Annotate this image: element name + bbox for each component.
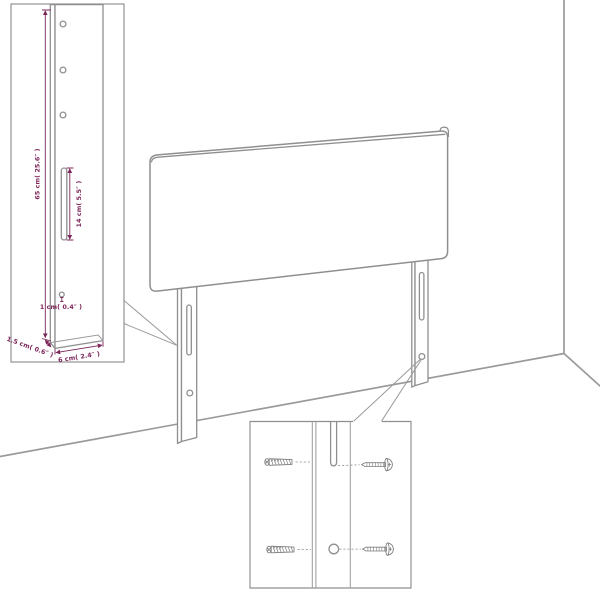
floor-line-right — [564, 354, 600, 387]
dimension-leg-height: 65 cm( 25.6″ ) — [35, 10, 52, 341]
left-leg-front-face — [182, 280, 197, 442]
inset-small-hole — [59, 292, 64, 297]
inset-hole — [329, 544, 339, 554]
headboard-panel — [150, 127, 448, 291]
callout-line — [124, 301, 177, 346]
left-leg-slot — [187, 305, 192, 355]
dimension-label-hole-diameter: 1 cm( 0.4″ ) — [40, 304, 82, 311]
inset-leg-side-face — [50, 5, 55, 349]
callout-lines-left-inset — [124, 301, 177, 346]
right-leg-slot — [419, 273, 424, 321]
diagram-canvas: 65 cm( 25.6″ ) 14 cm( 5.5″ ) 1 cm( 0.4″ … — [0, 0, 600, 600]
dimension-leg-thickness: 1.5 cm( 0.6″ ) — [6, 336, 55, 359]
dimension-label-leg-height: 65 cm( 25.6″ ) — [35, 148, 42, 199]
inset-hole-lower — [60, 112, 66, 118]
left-leg-hole — [187, 390, 193, 396]
inset-slot — [61, 168, 67, 240]
inset-hole-middle — [60, 67, 66, 73]
panel-front-face — [150, 131, 448, 291]
left-leg — [178, 280, 197, 444]
inset-hole-top — [60, 21, 66, 27]
headboard-assembly-diagram: 65 cm( 25.6″ ) 14 cm( 5.5″ ) 1 cm( 0.4″ … — [0, 0, 600, 600]
right-leg — [412, 250, 428, 387]
mounting-detail-inset — [250, 422, 411, 589]
dimension-label-leg-thickness: 1.5 cm( 0.6″ ) — [6, 336, 55, 359]
callout-line — [124, 324, 177, 346]
dimension-label-slot-length: 14 cm( 5.5″ ) — [76, 181, 83, 228]
leg-detail-inset: 65 cm( 25.6″ ) 14 cm( 5.5″ ) 1 cm( 0.4″ … — [6, 4, 124, 364]
right-leg-hole — [419, 354, 425, 360]
